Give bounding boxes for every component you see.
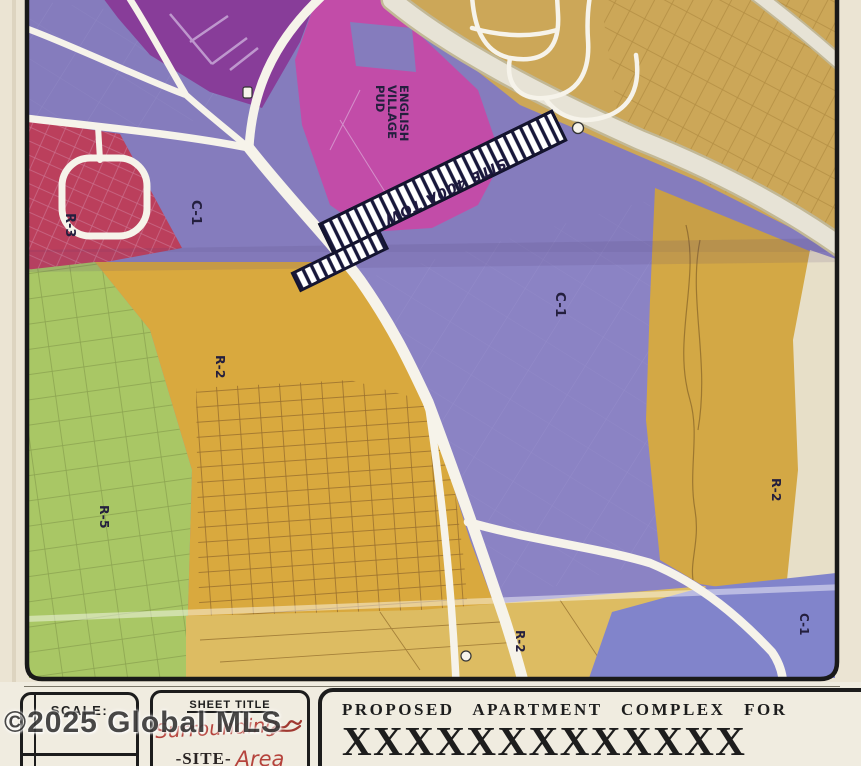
sheet-title-site-row: -SITE-Area — [153, 745, 307, 766]
zone-label-r5: R-5 — [97, 505, 112, 529]
zone-label-c1-bottom-right: C-1 — [797, 613, 811, 635]
zone-label-r2-left: R-2 — [213, 355, 228, 379]
title-block-divider — [24, 686, 840, 687]
paper-fold-shadow-left — [12, 0, 16, 692]
watermark: ©2025 Global MLS — [4, 706, 282, 740]
route-marker-icon — [243, 87, 252, 98]
zoning-map: SITE 400A TOW R-3 C-1 ENGLISH VILLAGE PU… — [0, 0, 861, 692]
zoning-map-svg: SITE 400A TOW R-3 C-1 ENGLISH VILLAGE PU… — [0, 0, 861, 692]
proposed-title-line2: XXXXXXXXXXXXX — [342, 721, 861, 762]
proposed-title-box: PROPOSED APARTMENT COMPLEX FOR XXXXXXXXX… — [318, 688, 861, 766]
pud-line-3: PUD — [373, 85, 387, 112]
zone-label-r3: R-3 — [62, 213, 77, 237]
zone-label-r2-right: R-2 — [769, 478, 784, 502]
route-shield-icon — [573, 123, 584, 134]
proposed-title-line1: PROPOSED APARTMENT COMPLEX FOR — [342, 700, 861, 720]
loop-road-stem — [98, 126, 100, 160]
zone-label-r2-bottom: R-2 — [513, 630, 527, 653]
scale-box-divider-1 — [23, 753, 136, 756]
handwritten-area: Area — [236, 747, 285, 766]
zone-label-c1-center: C-1 — [552, 292, 568, 317]
scanned-zoning-map-page: SITE 400A TOW R-3 C-1 ENGLISH VILLAGE PU… — [0, 0, 861, 766]
zone-label-c1-upper: C-1 — [188, 200, 204, 225]
site-word: -SITE- — [176, 749, 232, 766]
route-shield-icon-south — [461, 651, 471, 661]
